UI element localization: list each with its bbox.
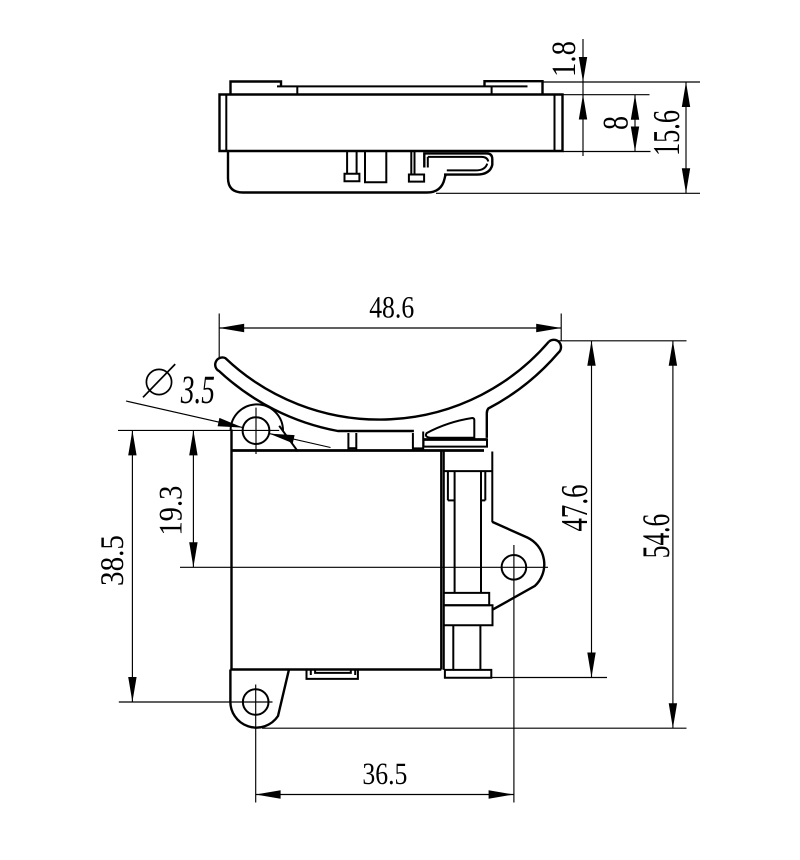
svg-text:15.6: 15.6 xyxy=(646,110,688,156)
svg-text:19.3: 19.3 xyxy=(154,486,190,536)
svg-text:38.5: 38.5 xyxy=(95,535,131,586)
svg-text:48.6: 48.6 xyxy=(369,290,414,325)
svg-text:3.5: 3.5 xyxy=(180,367,215,412)
svg-text:1.8: 1.8 xyxy=(546,41,583,77)
svg-text:47.6: 47.6 xyxy=(554,485,596,532)
svg-text:36.5: 36.5 xyxy=(362,756,407,791)
svg-text:8: 8 xyxy=(595,116,635,130)
svg-text:54.6: 54.6 xyxy=(635,514,678,559)
